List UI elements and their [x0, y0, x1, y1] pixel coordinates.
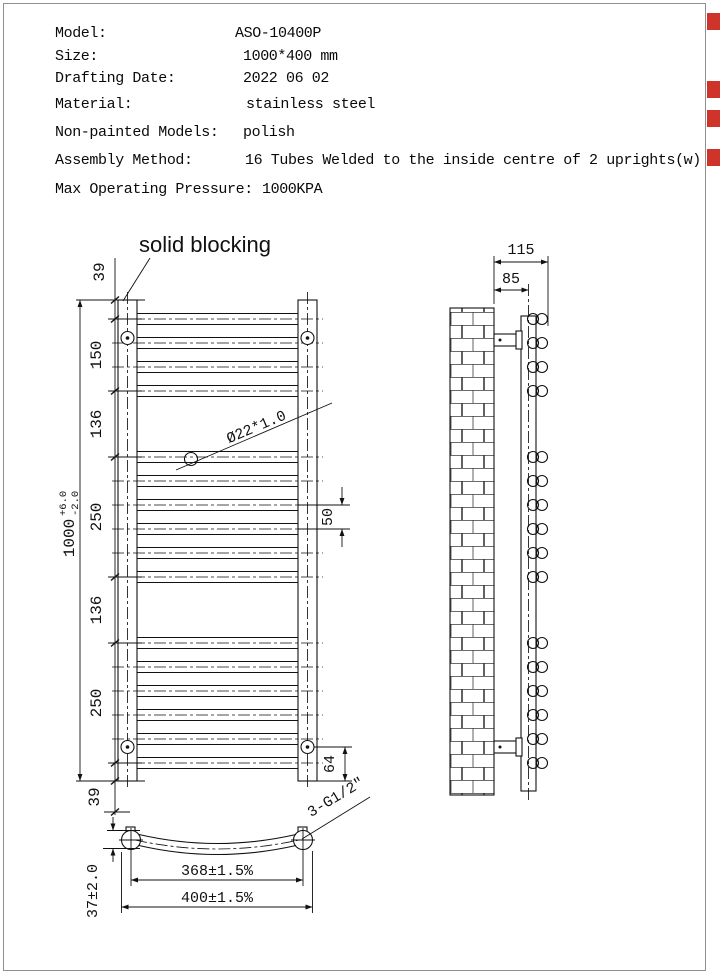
dim-bracket-to-bottom: 64 — [314, 747, 352, 781]
solid-blocking-text: solid blocking — [139, 232, 271, 257]
spec-label: Assembly Method: — [55, 152, 193, 169]
plan-right-upright — [291, 827, 315, 852]
side-bracket-top — [494, 331, 522, 349]
dim-wall-to-center-text: 85 — [502, 271, 520, 288]
spec-value: ASO-10400P — [235, 25, 321, 43]
front-mount-screws — [121, 332, 314, 754]
dim-overall-tol-plus: +6.0 — [58, 491, 70, 516]
spec-row-nonpainted: Non-painted Models:polish — [55, 124, 218, 142]
red-edge-marker — [707, 13, 720, 30]
red-edge-markers — [707, 0, 720, 180]
dim-gap1: 136 — [88, 410, 106, 439]
dim-group2: 250 — [88, 503, 106, 532]
dim-tube-pitch-text: 50 — [320, 508, 337, 526]
plan-view: 37±2.0 368±1.5% 400±1.5% 3-G1/2" — [85, 774, 370, 918]
spec-label: Drafting Date: — [55, 70, 175, 87]
dim-tube-centers: 368±1.5% — [131, 852, 303, 886]
spec-row-size: Size:1000*400 mm — [55, 48, 98, 66]
tube-spec-text: Ø22*1.0 — [224, 408, 289, 448]
spec-row-material: Material:stainless steel — [55, 96, 132, 114]
side-bracket-bottom — [494, 738, 522, 756]
technical-drawing: 1000 +6.0 -2.0 39 150 136 250 136 250 39 — [0, 200, 720, 980]
dim-wall-to-center: 85 — [494, 271, 529, 290]
red-edge-marker — [707, 110, 720, 127]
connection-callout: 3-G1/2" — [302, 774, 370, 839]
spec-row-pressure: Max Operating Pressure:1000KPA — [55, 181, 253, 199]
dim-overall-width-text: 400±1.5% — [181, 890, 254, 907]
spec-label: Size: — [55, 48, 98, 65]
dim-top-margin: 39 — [91, 262, 109, 281]
drawing-sheet: { "edge_markers": { "color": "#cf342a" }… — [0, 0, 720, 980]
dim-overall-width: 400±1.5% — [122, 851, 313, 913]
front-tubes — [112, 314, 323, 769]
red-edge-marker — [707, 81, 720, 98]
red-edge-marker — [707, 149, 720, 166]
dim-gap2: 136 — [88, 596, 106, 625]
front-view: 1000 +6.0 -2.0 39 150 136 250 136 250 39 — [58, 232, 352, 816]
spec-label: Non-painted Models: — [55, 124, 218, 141]
side-view: 115 85 — [450, 242, 548, 800]
spec-row-assembly: Assembly Method:16 Tubes Welded to the i… — [55, 152, 193, 170]
dim-overall-text: 1000 — [61, 519, 79, 557]
spec-row-model: Model:ASO-10400P — [55, 25, 107, 43]
spec-value: 2022 06 02 — [243, 70, 329, 88]
spec-value: stainless steel — [246, 96, 375, 114]
spec-label: Max Operating Pressure: — [55, 181, 253, 198]
dim-group3: 250 — [88, 689, 106, 718]
dim-tube-centers-text: 368±1.5% — [181, 863, 254, 880]
wall-section — [450, 308, 494, 795]
spec-value: 1000*400 mm — [243, 48, 338, 66]
dim-total-depth-text: 115 — [507, 242, 534, 259]
dim-bottom-margin: 39 — [86, 787, 104, 806]
spec-value: 16 Tubes Welded to the inside centre of … — [245, 152, 701, 170]
spec-label: Model: — [55, 25, 107, 42]
spec-value: polish — [243, 124, 295, 142]
spec-value: 1000KPA — [262, 181, 322, 199]
dim-bracket-to-bottom-text: 64 — [322, 755, 339, 773]
spec-label: Material: — [55, 96, 132, 113]
plan-curved-tube — [135, 835, 299, 855]
dim-stand-off-text: 37±2.0 — [85, 864, 102, 918]
dim-group1: 150 — [88, 341, 106, 370]
dim-overall-tol-minus: -2.0 — [70, 491, 82, 516]
solid-blocking-callout: solid blocking — [123, 232, 271, 301]
spec-row-drafting-date: Drafting Date:2022 06 02 — [55, 70, 175, 88]
